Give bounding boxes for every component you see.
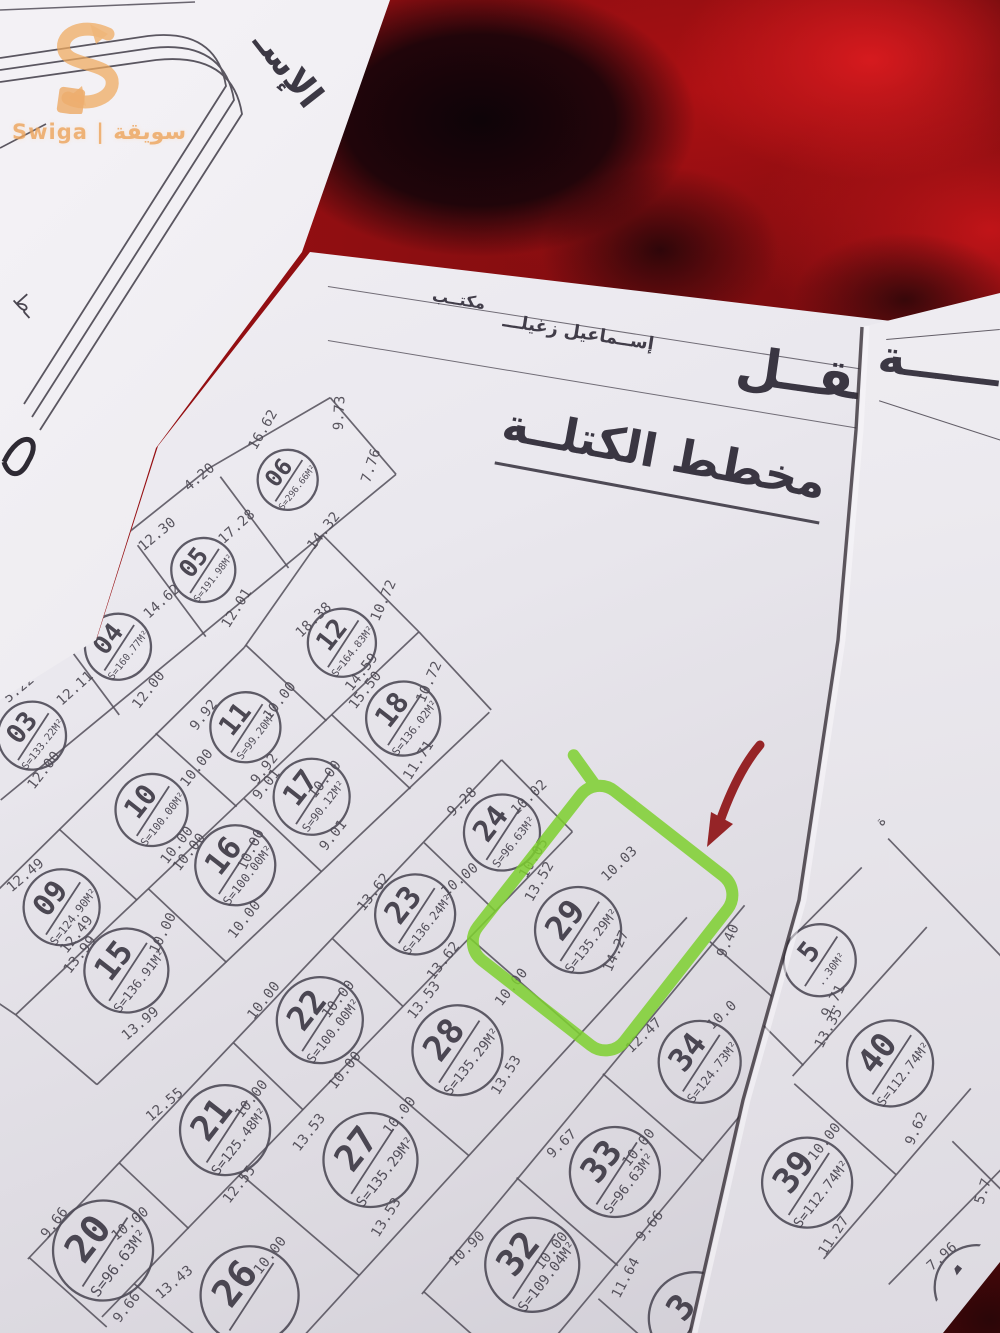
red-arrow-annotation	[707, 745, 760, 847]
swiga-logo-icon	[12, 6, 142, 114]
brand-text: Swiga | سويقة	[12, 120, 186, 145]
photo-scene: 16.629.737.764.2017.2814.3212.3014.6212.…	[0, 0, 1000, 1333]
swiga-watermark: Swiga | سويقة	[12, 6, 186, 145]
brand-arabic: سويقة	[113, 120, 186, 145]
annotation-layer	[0, 0, 1000, 1333]
brand-latin: Swiga	[12, 120, 88, 144]
